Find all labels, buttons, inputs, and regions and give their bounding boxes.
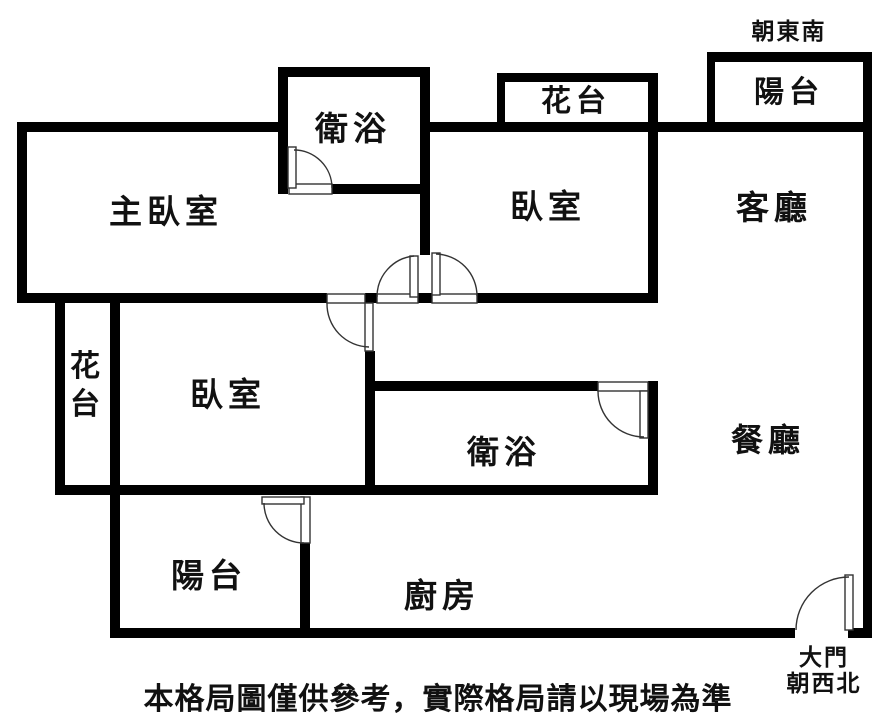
room-label-living-room: 客廳 — [736, 191, 812, 226]
door-main-entrance — [796, 575, 853, 630]
door-balcony-bottom — [262, 497, 310, 543]
room-label-bedroom-mid: 臥室 — [190, 378, 266, 413]
wall-balcony-kitchen-divider — [300, 543, 310, 638]
wall-bathroom-top-top — [278, 67, 430, 77]
door-bedroom-top — [432, 253, 477, 303]
room-label-dining-room: 餐廳 — [731, 424, 805, 458]
wall-bathroom-top-left — [278, 67, 288, 194]
wall-row1-bottom-stub — [418, 293, 432, 303]
wall-bottom-a — [110, 628, 795, 638]
wall-bathroom-top-bottom — [330, 184, 430, 194]
room-label-kitchen: 廚房 — [404, 579, 480, 614]
room-label-flower-bed-top: 花台 — [541, 86, 611, 118]
door-master-bedroom — [377, 256, 418, 303]
wall-master-top — [17, 122, 278, 132]
disclaimer-caption: 本格局圖僅供參考，實際格局請以現場為準 — [144, 684, 733, 716]
wall-row1-bottom-b — [365, 293, 377, 303]
main-door-label-line2: 朝西北 — [787, 671, 862, 695]
wall-divider-center — [420, 67, 430, 255]
wall-flowerbed-left-outer — [55, 300, 65, 495]
wall-flowerbed-left-inner — [110, 300, 120, 638]
room-label-master-bedroom: 主臥室 — [109, 195, 223, 230]
floor-plan: 朝東南 陽台 花台 衛浴 主臥室 臥室 客廳 花台 臥室 衛浴 餐廳 陽台 廚房… — [0, 0, 889, 724]
door-bedroom-mid — [327, 294, 373, 351]
wall-divider-right-upper — [648, 73, 658, 303]
room-label-bedroom-top: 臥室 — [510, 190, 586, 225]
orientation-note-label: 朝東南 — [752, 19, 827, 43]
room-label-bathroom-top: 衛浴 — [315, 112, 391, 147]
main-door-label-line1: 大門 — [799, 645, 849, 669]
wall-bathroom-mid-top — [365, 381, 598, 391]
wall-mid-bottom — [55, 485, 658, 495]
wall-balcony-top-top — [707, 52, 872, 62]
walls — [17, 52, 872, 638]
room-label-flower-bed-left: 花台 — [68, 348, 102, 423]
wall-divider-right-lower — [648, 381, 658, 495]
wall-row1-bottom-c — [477, 293, 658, 303]
room-label-balcony-bottom: 陽台 — [171, 559, 247, 594]
wall-flowerbed-top-left — [497, 73, 505, 122]
wall-right-exterior — [863, 52, 872, 638]
wall-balcony-top-left — [707, 52, 715, 122]
door-bathroom-mid — [598, 382, 648, 438]
wall-flowerbed-top-top — [497, 73, 658, 82]
wall-master-left — [17, 122, 27, 303]
room-label-bathroom-mid: 衛浴 — [467, 436, 541, 470]
wall-top-main — [420, 122, 872, 132]
door-bathroom-top — [288, 147, 332, 194]
room-label-balcony-top: 陽台 — [754, 77, 824, 109]
wall-bedroom-mid-right — [365, 351, 375, 485]
